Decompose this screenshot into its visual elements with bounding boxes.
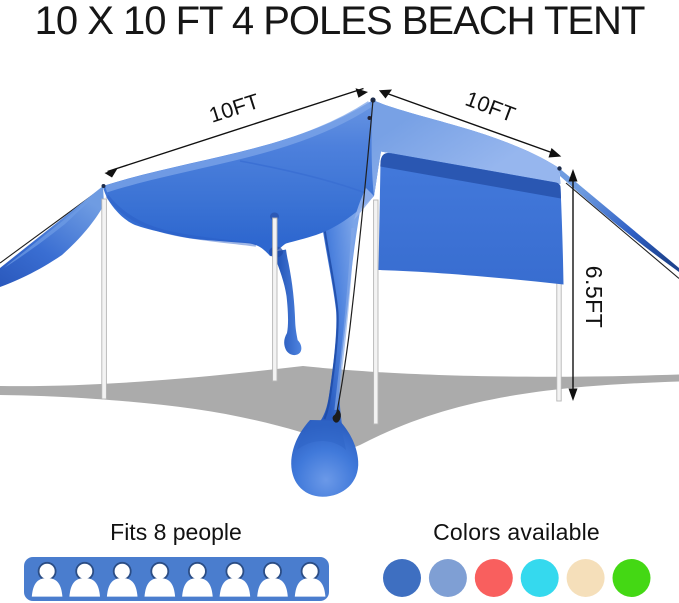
- svg-text:Fits 8 people: Fits 8 people: [110, 519, 242, 545]
- svg-text:Colors available: Colors available: [433, 519, 600, 545]
- svg-text:10FT: 10FT: [206, 89, 262, 127]
- svg-text:10FT: 10FT: [462, 87, 519, 127]
- svg-text:10 X 10 FT 4 POLES BEACH TENT: 10 X 10 FT 4 POLES BEACH TENT: [35, 0, 645, 43]
- svg-text:6.5FT: 6.5FT: [581, 266, 607, 329]
